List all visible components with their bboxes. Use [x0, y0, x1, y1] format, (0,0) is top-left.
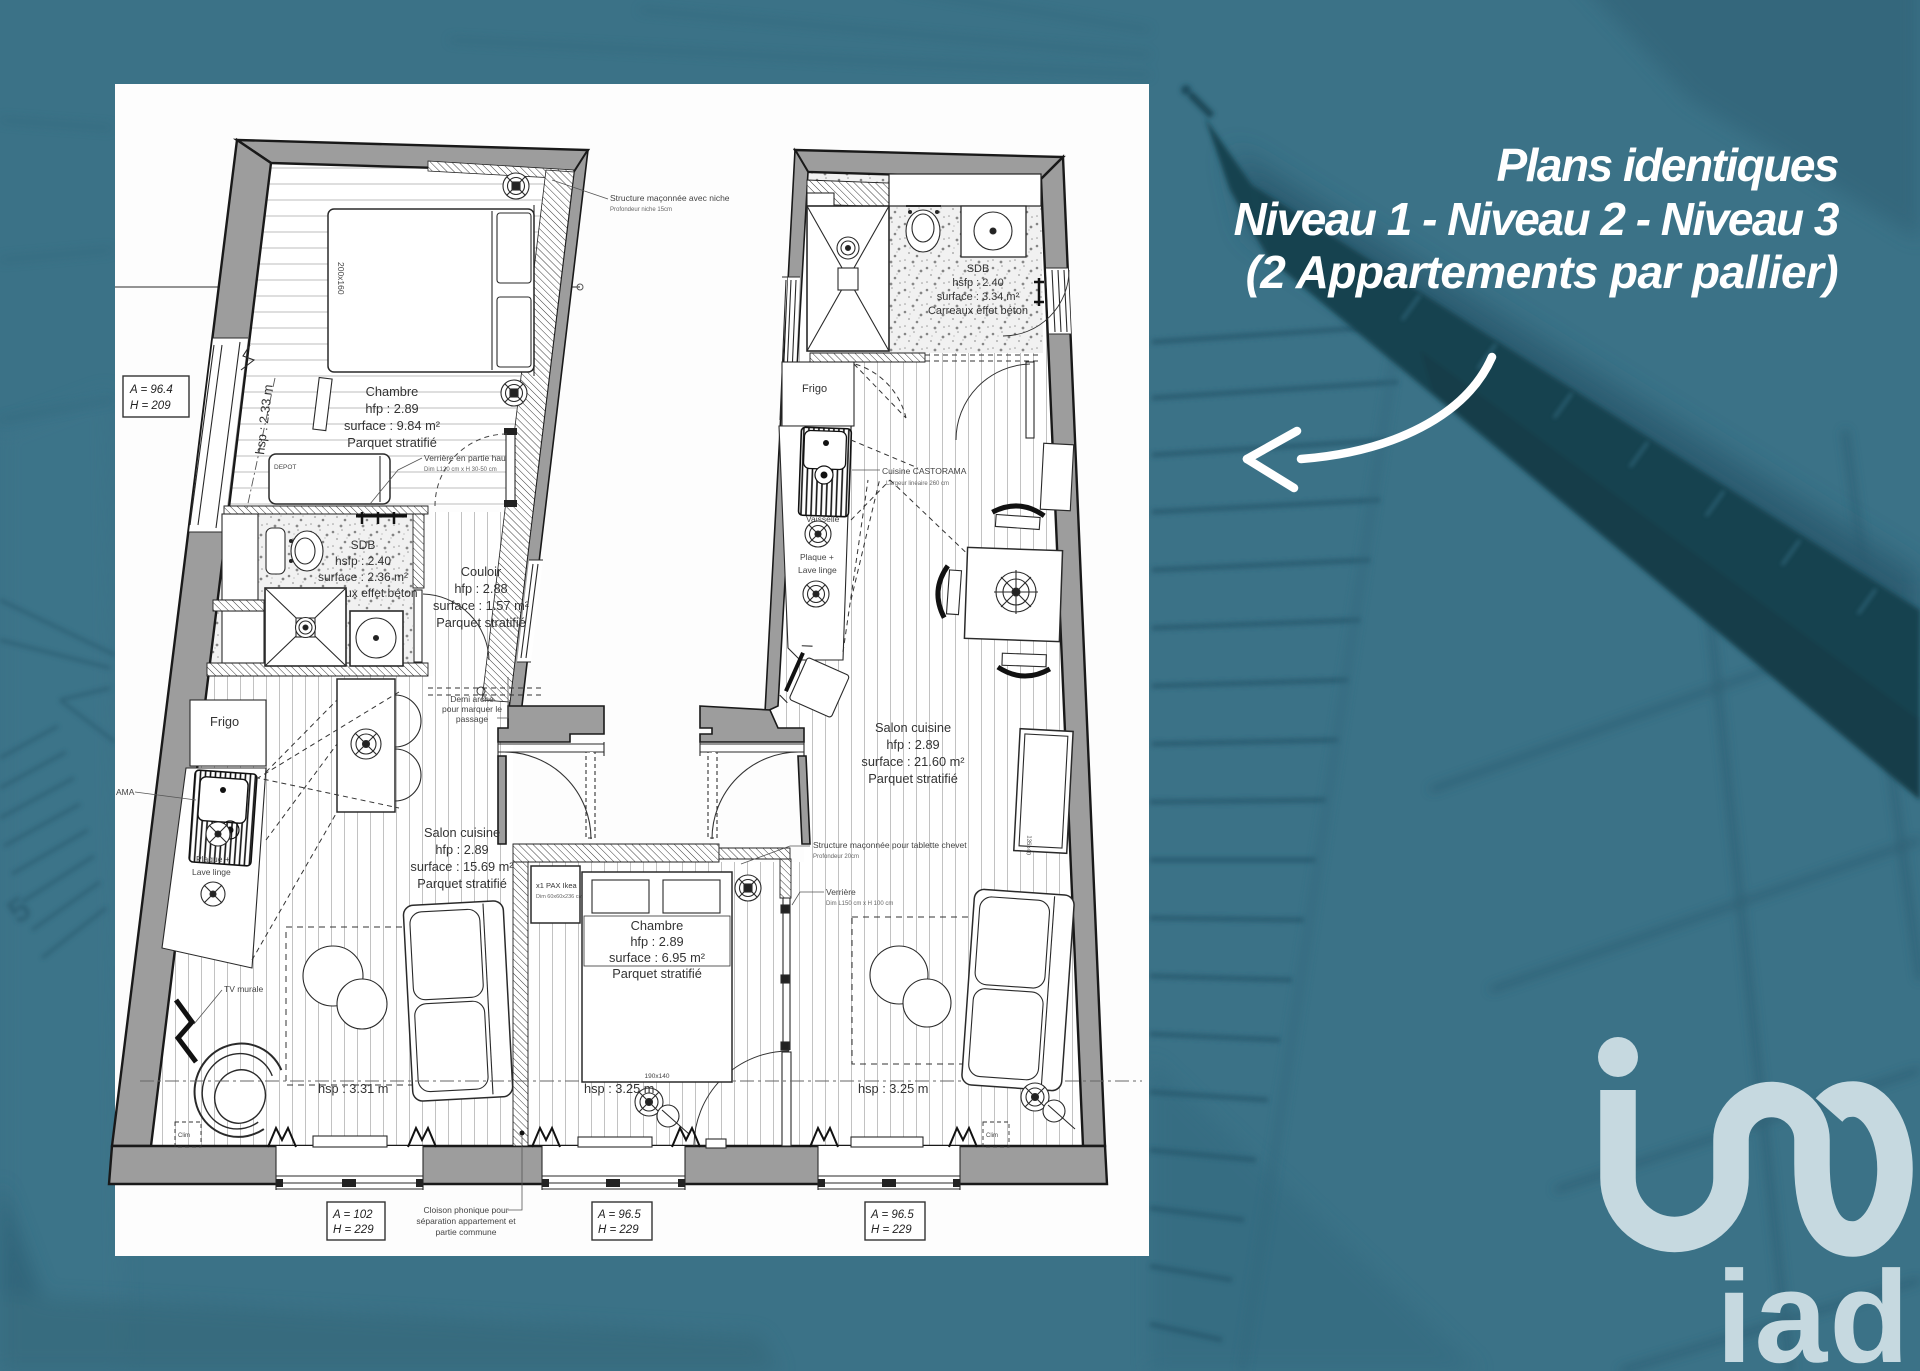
svg-text:Parquet stratifié: Parquet stratifié — [612, 966, 702, 981]
svg-text:x1 PAX Ikea: x1 PAX Ikea — [536, 881, 578, 890]
svg-text:Cuisine CASTORAMA: Cuisine CASTORAMA — [882, 466, 967, 476]
svg-text:pour marquer le: pour marquer le — [442, 704, 502, 714]
svg-text:DEPOT: DEPOT — [274, 464, 296, 471]
svg-text:Couloir: Couloir — [461, 564, 502, 579]
svg-text:135x40: 135x40 — [1025, 835, 1032, 856]
svg-text:H = 229: H = 229 — [598, 1224, 639, 1236]
svg-text:surface : 6.95 m²: surface : 6.95 m² — [609, 950, 706, 965]
svg-text:H = 229: H = 229 — [871, 1224, 912, 1236]
svg-text:200x160: 200x160 — [336, 262, 346, 295]
svg-text:Plaque +: Plaque + — [800, 552, 834, 562]
svg-text:Verrière: Verrière — [826, 887, 856, 897]
svg-text:Dim L150 cm x H 100 cm: Dim L150 cm x H 100 cm — [826, 901, 893, 907]
svg-text:Demi arche: Demi arche — [450, 694, 494, 704]
svg-text:hfp : 2.88: hfp : 2.88 — [454, 581, 507, 596]
svg-text:Largeur linéaire 260 cm: Largeur linéaire 260 cm — [886, 481, 949, 487]
svg-text:(2 Appartements par pallier): (2 Appartements par pallier) — [1246, 246, 1838, 298]
svg-text:hfp : 2.89: hfp : 2.89 — [435, 842, 488, 857]
svg-text:H = 229: H = 229 — [333, 1224, 374, 1236]
svg-text:surface : 3.34 m²: surface : 3.34 m² — [937, 291, 1020, 303]
svg-text:SDB: SDB — [967, 263, 990, 275]
svg-text:A = 102: A = 102 — [332, 1209, 373, 1221]
svg-text:Clim: Clim — [178, 1133, 190, 1139]
svg-text:Plans identiques: Plans identiques — [1496, 139, 1838, 191]
svg-text:hsp : 3.25 m: hsp : 3.25 m — [584, 1081, 654, 1096]
svg-text:AMA: AMA — [116, 787, 135, 797]
svg-text:séparation appartement et: séparation appartement et — [416, 1216, 516, 1226]
svg-text:hfp : 2.89: hfp : 2.89 — [886, 737, 939, 752]
svg-text:Lave linge: Lave linge — [798, 565, 837, 575]
svg-text:partie commune: partie commune — [436, 1227, 497, 1237]
svg-text:hsp : 3.31 m: hsp : 3.31 m — [318, 1081, 388, 1096]
svg-text:Profondeur niche 15cm: Profondeur niche 15cm — [610, 207, 672, 213]
svg-text:Dim 60x60x236 cm: Dim 60x60x236 cm — [536, 894, 583, 900]
svg-text:surface : 21.60 m²: surface : 21.60 m² — [861, 754, 965, 769]
svg-text:Profondeur 20cm: Profondeur 20cm — [813, 854, 859, 860]
svg-text:Cloison phonique pour: Cloison phonique pour — [423, 1205, 508, 1215]
svg-text:Clim: Clim — [986, 1133, 998, 1139]
svg-text:A = 96.4: A = 96.4 — [129, 384, 173, 396]
svg-text:Salon cuisine: Salon cuisine — [875, 720, 951, 735]
svg-text:passage: passage — [456, 714, 488, 724]
svg-text:hsfp : 2.40: hsfp : 2.40 — [335, 554, 391, 568]
svg-text:H = 209: H = 209 — [130, 400, 171, 412]
svg-text:Parquet stratifié: Parquet stratifié — [417, 876, 507, 891]
svg-text:iad: iad — [1716, 1243, 1911, 1371]
svg-text:Niveau 1 - Niveau 2 - Niveau 3: Niveau 1 - Niveau 2 - Niveau 3 — [1234, 193, 1840, 245]
svg-text:Dim L120 cm x H 30-50 cm: Dim L120 cm x H 30-50 cm — [424, 467, 497, 473]
svg-text:hfp : 2.89: hfp : 2.89 — [365, 401, 418, 416]
svg-text:surface : 1.57 m²: surface : 1.57 m² — [433, 598, 530, 613]
svg-text:Verrière en partie haute: Verrière en partie haute — [424, 453, 513, 463]
svg-text:190x140: 190x140 — [645, 1073, 670, 1080]
svg-text:Parquet stratifié: Parquet stratifié — [347, 435, 437, 450]
svg-text:hsp : 3.25 m: hsp : 3.25 m — [858, 1081, 928, 1096]
svg-text:Parquet stratifié: Parquet stratifié — [868, 771, 958, 786]
svg-text:Structure maçonnée pour tablet: Structure maçonnée pour tablette chevet — [813, 840, 967, 850]
svg-text:Structure maçonnée avec niche: Structure maçonnée avec niche — [610, 193, 730, 203]
svg-text:A = 96.5: A = 96.5 — [870, 1209, 914, 1221]
svg-text:A = 96.5: A = 96.5 — [597, 1209, 641, 1221]
svg-text:surface : 9.84 m²: surface : 9.84 m² — [344, 418, 441, 433]
svg-text:Frigo: Frigo — [210, 714, 239, 729]
svg-text:Chambre: Chambre — [366, 384, 419, 399]
svg-text:hsfp : 2.40: hsfp : 2.40 — [952, 277, 1003, 289]
svg-text:Lave linge: Lave linge — [192, 867, 231, 877]
svg-text:Frigo: Frigo — [802, 383, 827, 395]
svg-text:hfp : 2.89: hfp : 2.89 — [630, 934, 683, 949]
svg-text:Parquet stratifié: Parquet stratifié — [436, 615, 526, 630]
svg-text:Plaque +: Plaque + — [196, 854, 230, 864]
svg-text:Salon cuisine: Salon cuisine — [424, 825, 500, 840]
svg-text:Chambre: Chambre — [631, 918, 684, 933]
svg-text:surface : 15.69 m²: surface : 15.69 m² — [410, 859, 514, 874]
svg-text:surface : 2.36 m²: surface : 2.36 m² — [318, 570, 408, 584]
svg-text:TV murale: TV murale — [224, 984, 263, 994]
svg-text:Carreaux effet béton: Carreaux effet béton — [928, 305, 1028, 317]
svg-text:SDB: SDB — [351, 538, 376, 552]
